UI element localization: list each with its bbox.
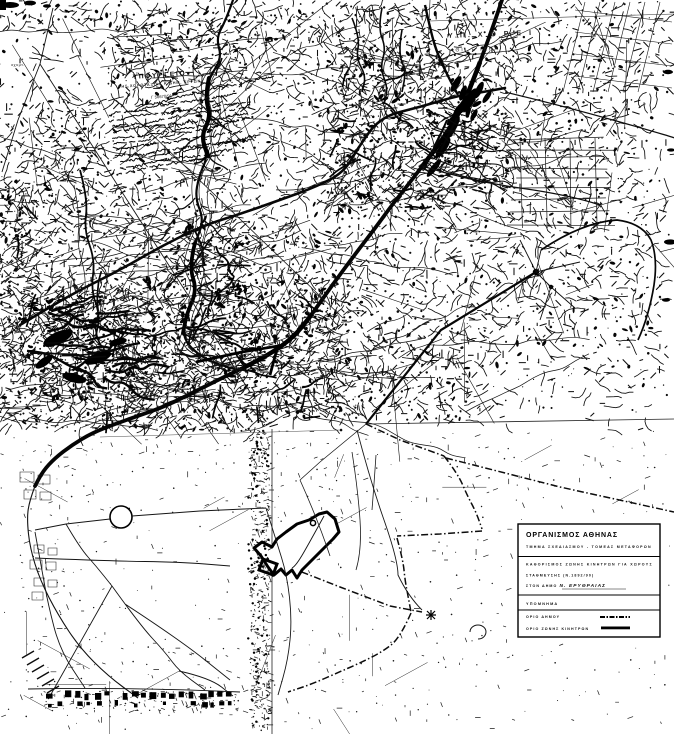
svg-text:ΟΡΙΟ ΖΩΝΗΣ ΚΙΝΗΤΡΩΝ: ΟΡΙΟ ΖΩΝΗΣ ΚΙΝΗΤΡΩΝ	[526, 627, 589, 631]
svg-text:ΚΑΘΟΡΙΣΜΟΣ ΖΩΝΗΣ ΚΙΝΗΤΡΩΝ ΓΙΑ: ΚΑΘΟΡΙΣΜΟΣ ΖΩΝΗΣ ΚΙΝΗΤΡΩΝ ΓΙΑ ΧΩΡΟΥΣ	[526, 563, 653, 567]
svg-text:ΟΡΓΑΝΙΣΜΟΣ ΑΘΗΝΑΣ: ΟΡΓΑΝΙΣΜΟΣ ΑΘΗΝΑΣ	[526, 532, 618, 539]
svg-text:ΥΠΟΜΝΗΜΑ: ΥΠΟΜΝΗΜΑ	[526, 602, 558, 606]
svg-text:ΣΤΑΘΜΕΥΣΗΣ (Ν.1892/90): ΣΤΑΘΜΕΥΣΗΣ (Ν.1892/90)	[526, 574, 594, 578]
svg-text:ΟΡΙΟ ΔΗΜΟΥ: ΟΡΙΟ ΔΗΜΟΥ	[526, 615, 560, 619]
svg-text:ΤΜΗΜΑ ΣΧΕΔΙΑΣΜΟΥ - ΤΟΜΕΑΣ ΜΕΤΑ: ΤΜΗΜΑ ΣΧΕΔΙΑΣΜΟΥ - ΤΟΜΕΑΣ ΜΕΤΑΦΟΡΩΝ	[526, 545, 652, 549]
svg-text:οχυμτ.: οχυμτ.	[11, 62, 25, 67]
